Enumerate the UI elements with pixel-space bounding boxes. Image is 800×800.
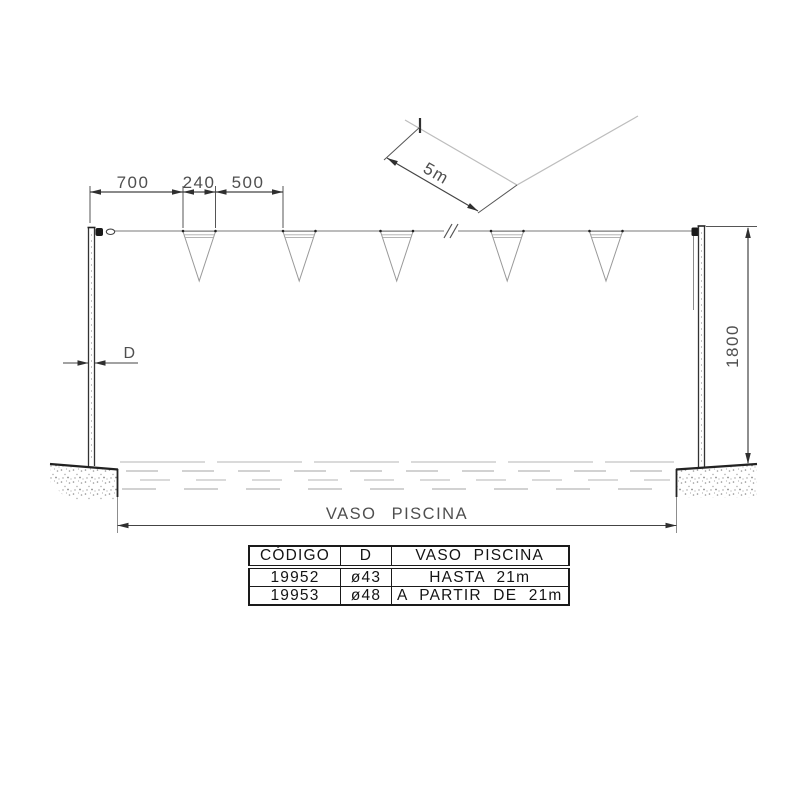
- flag-pennant: [490, 230, 525, 281]
- arrowhead: [745, 453, 751, 464]
- cable: [96, 224, 700, 310]
- arrowhead: [666, 523, 677, 529]
- extension-line: [384, 127, 420, 160]
- arrowhead: [216, 189, 227, 195]
- spec-table-row: 19953 ø48 A PARTIR DE 21m: [249, 587, 569, 606]
- dimension-5m-group: 5m: [384, 116, 638, 213]
- dimension-post-diameter-group: D: [63, 345, 138, 366]
- flag-pennant: [182, 230, 217, 281]
- spec-table: CÓDIGO D VASO PISCINA 19952 ø43 HASTA 21…: [248, 545, 570, 606]
- flag-pennant: [379, 230, 414, 281]
- spec-table-row: 19952 ø43 HASTA 21m: [249, 567, 569, 587]
- dimension-top-group: 700 240 500: [90, 173, 283, 228]
- spec-header-vaso-piscina: VASO PISCINA: [392, 546, 569, 567]
- spec-header-codigo: CÓDIGO: [249, 546, 341, 567]
- arrowhead: [745, 227, 751, 238]
- cable-clamp-left: [96, 228, 104, 236]
- arrowhead: [90, 189, 101, 195]
- pool-flag-line-drawing-page: 5m 700 240 500: [0, 0, 800, 800]
- dimension-1800-label: 1800: [723, 324, 742, 368]
- spec-cell-diameter: ø48: [341, 587, 392, 606]
- arrowhead: [118, 523, 129, 529]
- spec-cell-diameter: ø43: [341, 567, 392, 587]
- arrowhead: [272, 189, 283, 195]
- extension-line: [478, 185, 517, 213]
- pool-water-lines: [120, 462, 674, 489]
- cable-break-symbol: [444, 224, 458, 238]
- arrowhead: [387, 158, 398, 166]
- ground-left: [50, 464, 118, 500]
- arrowhead: [467, 203, 478, 211]
- cable-eye-loop: [106, 229, 114, 234]
- spec-cell-vaso: HASTA 21m: [392, 567, 569, 587]
- dimension-vaso-piscina-group: VASO PISCINA: [118, 497, 677, 533]
- dimension-500-label: 500: [232, 173, 265, 192]
- left-post: [88, 227, 96, 466]
- dimension-240-label: 240: [183, 173, 216, 192]
- right-post: [698, 226, 706, 468]
- arrowhead: [95, 360, 106, 366]
- flag-pennant: [282, 230, 317, 281]
- ground-right: [676, 464, 757, 498]
- spec-cell-vaso: A PARTIR DE 21m: [392, 587, 569, 606]
- spec-table-header-row: CÓDIGO D VASO PISCINA: [249, 546, 569, 567]
- flag-pennant: [588, 230, 624, 281]
- dimension-700-label: 700: [117, 173, 150, 192]
- dimension-d-label: D: [123, 345, 136, 362]
- arrowhead: [78, 360, 89, 366]
- spec-cell-codigo: 19952: [249, 567, 341, 587]
- dimension-5m-label: 5m: [420, 159, 453, 189]
- spec-header-d: D: [341, 546, 392, 567]
- technical-drawing-canvas: 5m 700 240 500: [0, 0, 800, 800]
- dimension-1800-group: 1800: [706, 227, 757, 465]
- vaso-piscina-label: VASO PISCINA: [326, 505, 468, 523]
- spec-cell-codigo: 19953: [249, 587, 341, 606]
- spec-table-container: CÓDIGO D VASO PISCINA 19952 ø43 HASTA 21…: [248, 545, 570, 606]
- flags-group: [182, 230, 624, 281]
- arrowhead: [172, 189, 183, 195]
